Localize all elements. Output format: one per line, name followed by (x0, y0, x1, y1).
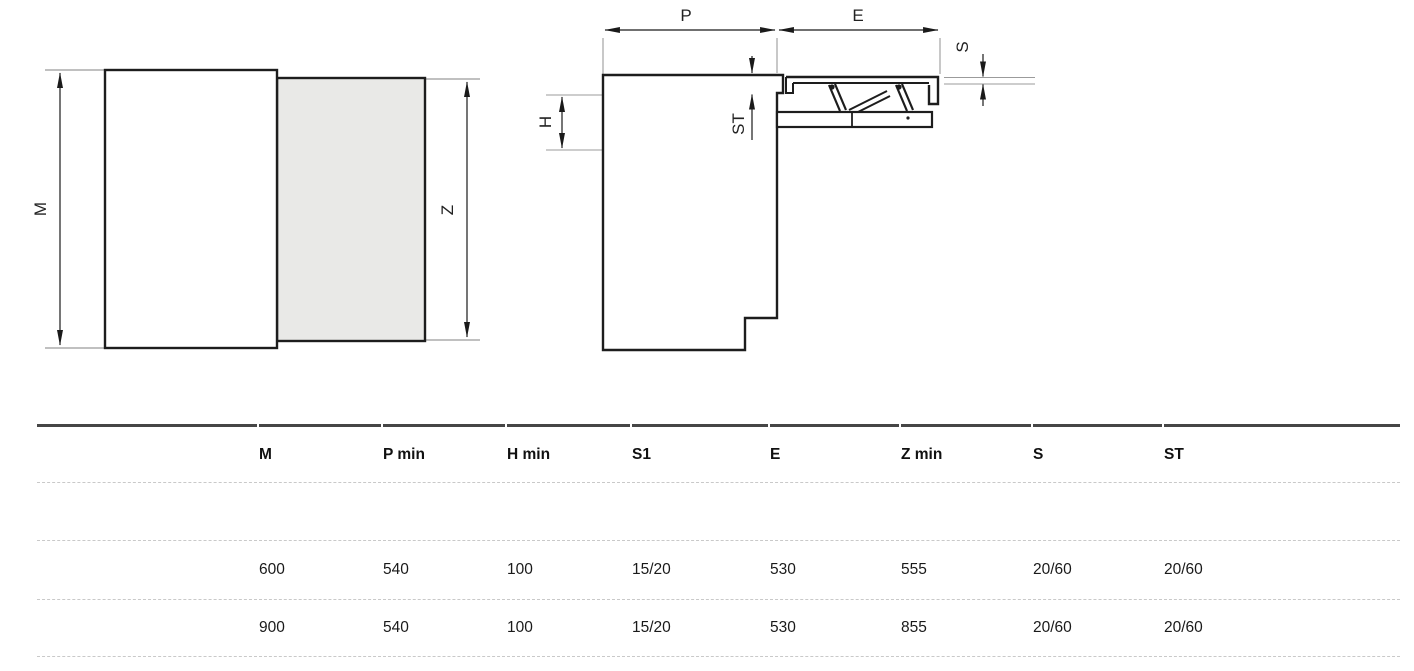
table-cell: 600 (259, 541, 381, 600)
spacer-cell (507, 483, 630, 541)
col-header-blank (37, 424, 257, 483)
spacer-cell (1033, 483, 1162, 541)
pivot-pin (896, 84, 901, 89)
table-cell (37, 541, 257, 600)
section-view: P E S ST H (536, 6, 1035, 350)
table-cell: 555 (901, 541, 1031, 600)
dim-label-st: ST (729, 113, 748, 135)
table-cell: 100 (507, 600, 630, 657)
fastener-dot (906, 116, 909, 119)
cabinet-side-profile (603, 75, 783, 350)
dim-label-e: E (852, 6, 863, 25)
shelf-bottom-board (777, 112, 932, 127)
dim-label-h: H (536, 116, 555, 128)
front-view: M Z (31, 70, 480, 348)
spacer-cell (37, 483, 257, 541)
pivot-pin (829, 84, 834, 89)
table-cell: 530 (770, 541, 899, 600)
table-cell: 900 (259, 600, 381, 657)
table-cell: 20/60 (1164, 541, 1400, 600)
table-cell: 100 (507, 541, 630, 600)
col-header-h-min: H min (507, 424, 630, 483)
table-cell: 530 (770, 600, 899, 657)
table-cell: 15/20 (632, 600, 768, 657)
table-cell: 855 (901, 600, 1031, 657)
table-cell: 540 (383, 600, 505, 657)
col-header-m: M (259, 424, 381, 483)
spacer-cell (1164, 483, 1400, 541)
col-header-st: ST (1164, 424, 1400, 483)
dim-label-z: Z (438, 205, 457, 215)
shelf-top-board (786, 77, 938, 104)
table-cell (37, 600, 257, 657)
dim-label-p: P (680, 6, 691, 25)
table-cell: 20/60 (1033, 600, 1162, 657)
dim-label-m: M (31, 202, 50, 216)
table-cell: 20/60 (1164, 600, 1400, 657)
col-header-s1: S1 (632, 424, 768, 483)
pull-out-mechanism (777, 77, 938, 127)
col-header-e: E (770, 424, 899, 483)
pull-out-panel (277, 78, 425, 341)
col-header-p-min: P min (383, 424, 505, 483)
shelf-left-end (786, 77, 793, 93)
col-header-s: S (1033, 424, 1162, 483)
table-cell: 540 (383, 541, 505, 600)
strut-right (902, 84, 913, 110)
col-header-z-min: Z min (901, 424, 1031, 483)
spacer-cell (383, 483, 505, 541)
technical-drawing: M Z (0, 0, 1414, 400)
table-cell: 15/20 (632, 541, 768, 600)
spacer-cell (632, 483, 768, 541)
strut-left (835, 84, 846, 110)
table-cell: 20/60 (1033, 541, 1162, 600)
spacer-cell (259, 483, 381, 541)
spacer-cell (770, 483, 899, 541)
cabinet-front-panel (105, 70, 277, 348)
spacer-cell (901, 483, 1031, 541)
bottom-whitespace (0, 657, 1414, 671)
dim-label-s: S (953, 41, 972, 52)
dimension-table: M P min H min S1 E Z min S ST 600 540 10… (37, 424, 1400, 657)
